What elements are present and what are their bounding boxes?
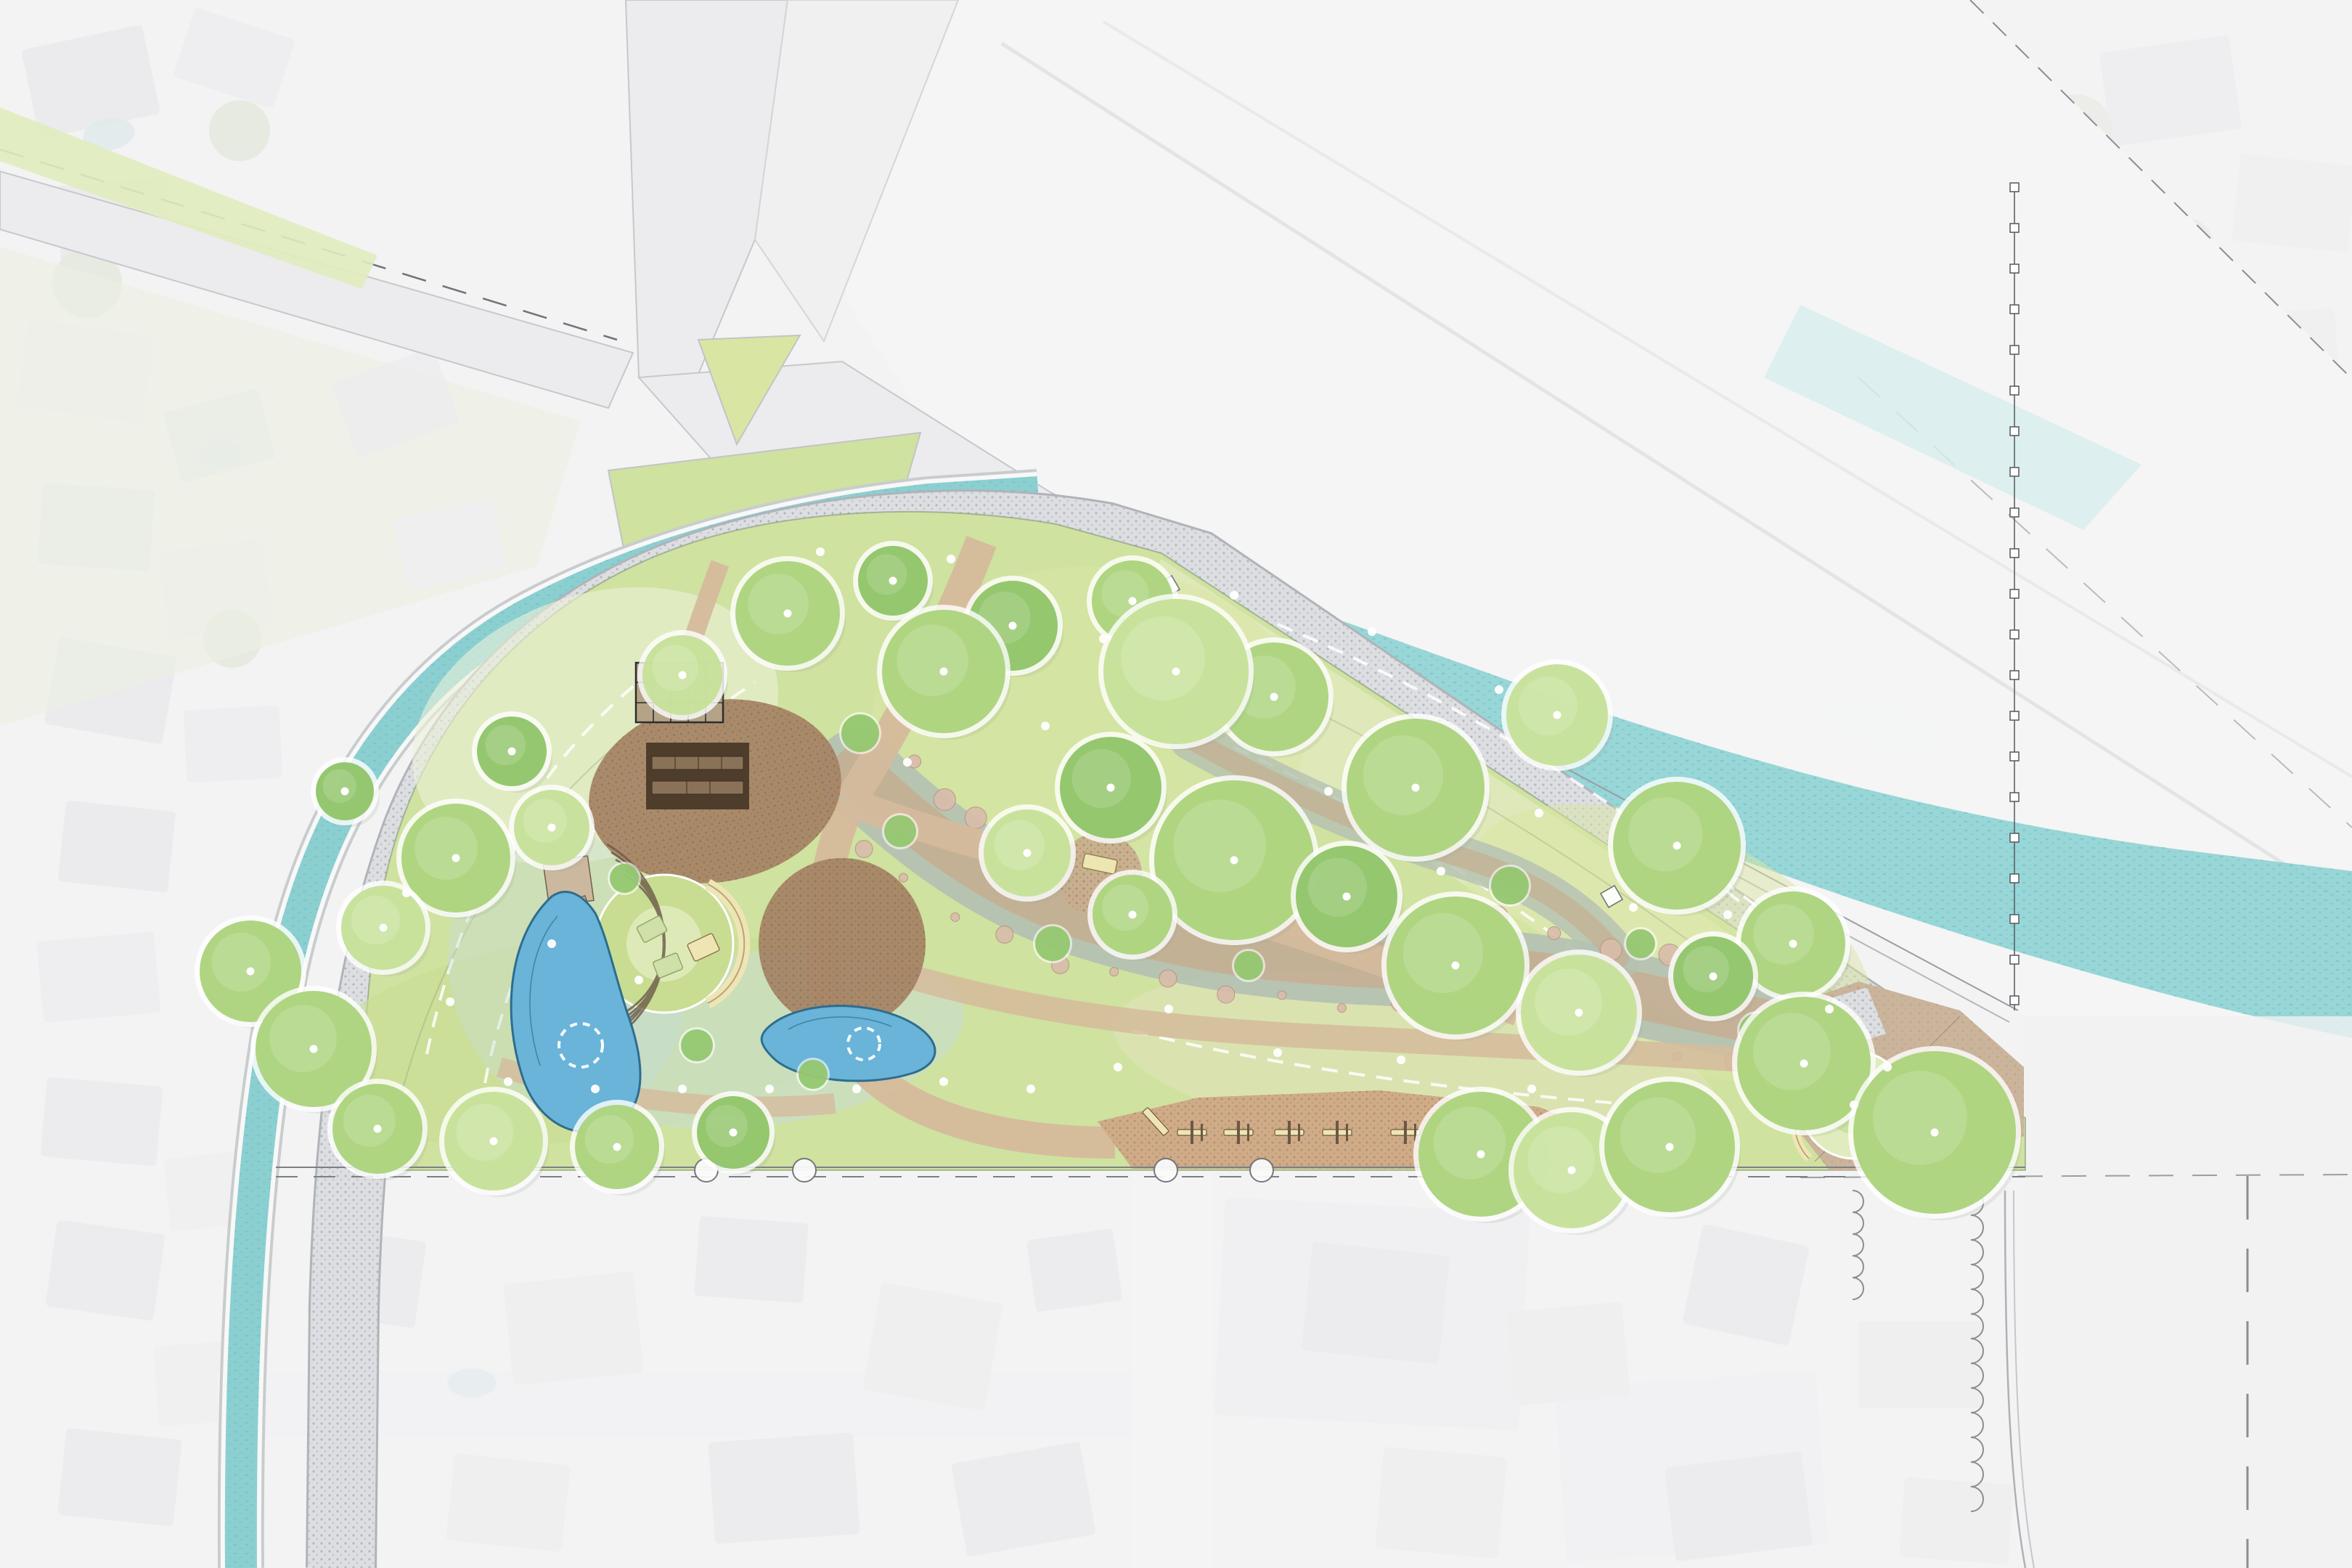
fence-post: [2010, 711, 2019, 720]
planter-bed: [652, 756, 743, 769]
fence-post: [2010, 833, 2019, 842]
meadow-dot: [816, 547, 825, 556]
fence-post: [2010, 224, 2019, 232]
fence-post: [2010, 996, 2019, 1005]
shrub: [608, 862, 641, 895]
survey-circle: [1154, 1159, 1177, 1182]
survey-circle: [793, 1159, 816, 1182]
meadow-dot: [634, 976, 643, 984]
shrub: [1489, 865, 1531, 907]
fence-post: [2010, 508, 2019, 517]
site-plan-stage: [0, 0, 2352, 1568]
meadow-dot: [1041, 722, 1050, 730]
fence-post: [2010, 305, 2019, 314]
meadow-dot: [852, 1085, 861, 1093]
shrub: [839, 712, 881, 754]
meadow-dot: [1495, 685, 1503, 694]
fence-post: [2010, 386, 2019, 395]
fence-post: [2010, 955, 2019, 964]
meadow-dot: [1026, 1085, 1035, 1093]
cobble: [1548, 926, 1561, 939]
shrub: [882, 813, 918, 849]
shrub: [796, 1058, 830, 1091]
cobble: [1278, 991, 1286, 1000]
fence-post: [2010, 793, 2019, 801]
cobble: [996, 926, 1013, 943]
gathering-plaza-texture: [759, 858, 926, 1029]
meadow-dot: [591, 1085, 600, 1093]
meadow-dot: [1850, 1101, 1858, 1109]
meadow-dot: [1723, 910, 1732, 919]
shrub: [1232, 949, 1265, 982]
survey-circle: [1250, 1159, 1273, 1182]
tree: [1848, 1046, 2022, 1220]
fence-post: [2010, 589, 2019, 598]
fence-post: [2010, 752, 2019, 761]
cobble: [934, 789, 955, 811]
cobble: [951, 912, 960, 921]
meadow-dot: [402, 889, 411, 897]
meadow-dot: [1164, 1005, 1173, 1013]
meadow-dot: [547, 939, 556, 948]
fence-post: [2010, 915, 2019, 923]
cobble: [1217, 986, 1235, 1003]
meadow-dot: [1230, 591, 1238, 600]
fence-post: [2010, 630, 2019, 639]
cobble: [965, 807, 987, 829]
planter-bed: [652, 781, 743, 794]
meadow-dot: [1437, 867, 1445, 875]
meadow-dot: [939, 1077, 948, 1086]
fence-post: [2010, 549, 2019, 558]
meadow-dot: [1368, 627, 1376, 636]
meadow-dot: [678, 1085, 687, 1093]
east-street-pavement: [2025, 1016, 2352, 1568]
fence-post: [2010, 264, 2019, 273]
meadow-dot: [1397, 1055, 1405, 1064]
meadow-dot: [947, 555, 955, 563]
cobble: [1159, 970, 1177, 987]
meadow-dot: [1273, 1048, 1282, 1057]
cobble: [855, 840, 873, 857]
meadow-dot: [1629, 903, 1638, 912]
meadow-dot: [504, 1077, 513, 1086]
cobble: [1337, 1003, 1346, 1012]
meadow-dot: [1114, 1063, 1122, 1071]
site-plan-canvas: [0, 0, 2352, 1568]
cobble: [899, 873, 907, 882]
meadow-dot: [1324, 787, 1333, 796]
fence-post: [2010, 671, 2019, 679]
meadow-dot: [1099, 634, 1108, 643]
meadow-dot: [1825, 1005, 1834, 1013]
fence-post: [2010, 427, 2019, 436]
garden-structure: [646, 743, 749, 809]
shrub: [1033, 924, 1072, 963]
meadow-dot: [903, 758, 912, 767]
cobble: [1110, 968, 1119, 976]
fence-post: [2010, 874, 2019, 883]
shrub: [679, 1027, 715, 1063]
fence-post: [2010, 183, 2019, 192]
meadow-dot: [1527, 1085, 1536, 1093]
meadow-dot: [1883, 1063, 1892, 1071]
meadow-dot: [1535, 809, 1543, 817]
fence-post: [2010, 467, 2019, 476]
fence-post: [2010, 346, 2019, 354]
meadow-dot: [765, 1085, 774, 1093]
shrub: [1624, 927, 1657, 960]
meadow-dot: [446, 997, 454, 1006]
